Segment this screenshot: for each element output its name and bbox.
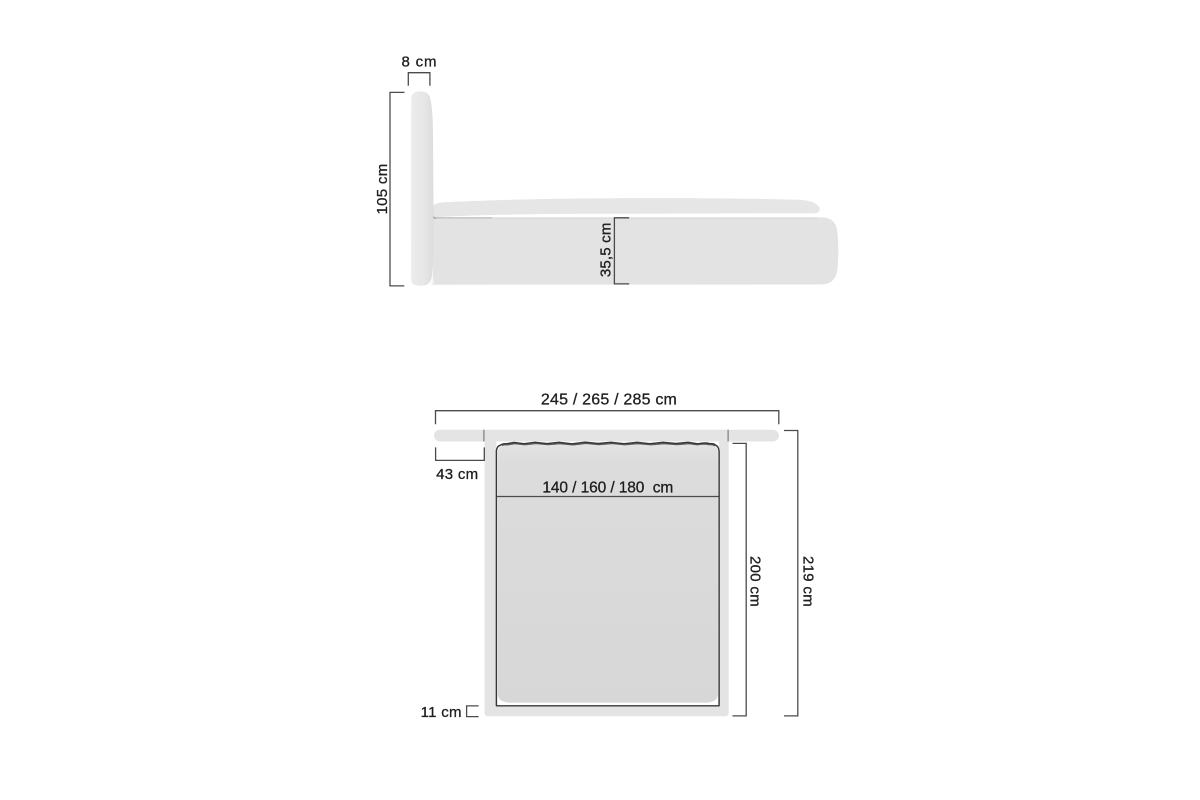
svg-text:245 / 265 / 285 cm: 245 / 265 / 285 cm — [541, 392, 677, 409]
svg-text:8 cm: 8 cm — [402, 54, 438, 71]
svg-text:105 cm: 105 cm — [374, 164, 391, 215]
svg-text:219 cm: 219 cm — [800, 556, 817, 607]
svg-text:140 / 160 / 180 cm: 140 / 160 / 180 cm — [542, 479, 673, 496]
svg-text:200 cm: 200 cm — [747, 556, 764, 607]
svg-text:35,5 cm: 35,5 cm — [598, 222, 615, 277]
svg-text:43 cm: 43 cm — [436, 466, 478, 483]
svg-text:11 cm: 11 cm — [421, 704, 462, 721]
